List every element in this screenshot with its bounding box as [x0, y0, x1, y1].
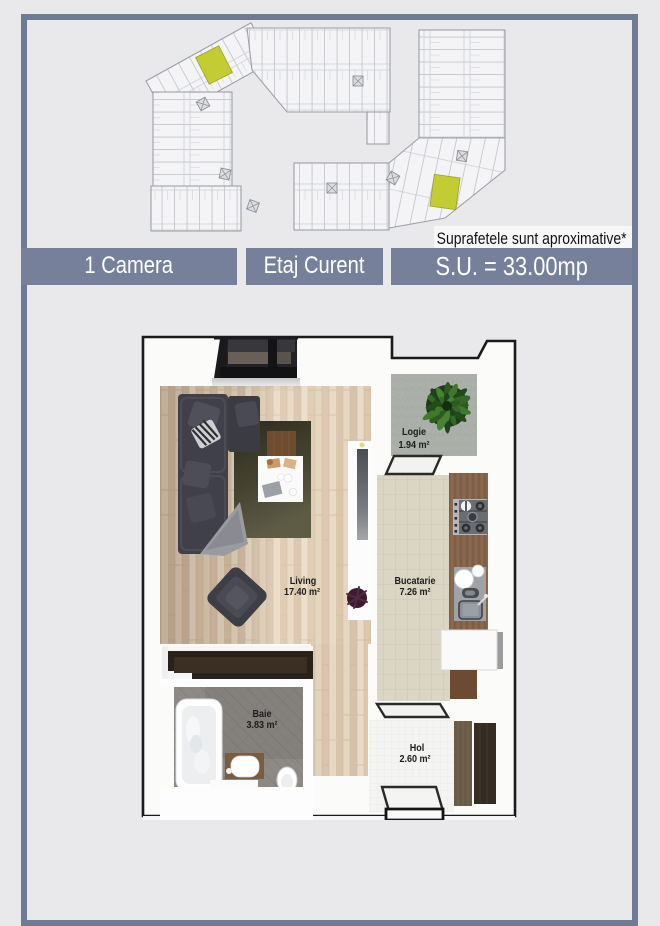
svg-text:3.83 m²: 3.83 m² [246, 719, 278, 731]
svg-text:1.94 m²: 1.94 m² [398, 439, 430, 451]
svg-text:17.40 m²: 17.40 m² [284, 586, 321, 598]
svg-text:2.60 m²: 2.60 m² [399, 753, 431, 765]
svg-text:Logie: Logie [402, 426, 427, 438]
svg-text:7.26 m²: 7.26 m² [399, 586, 431, 598]
